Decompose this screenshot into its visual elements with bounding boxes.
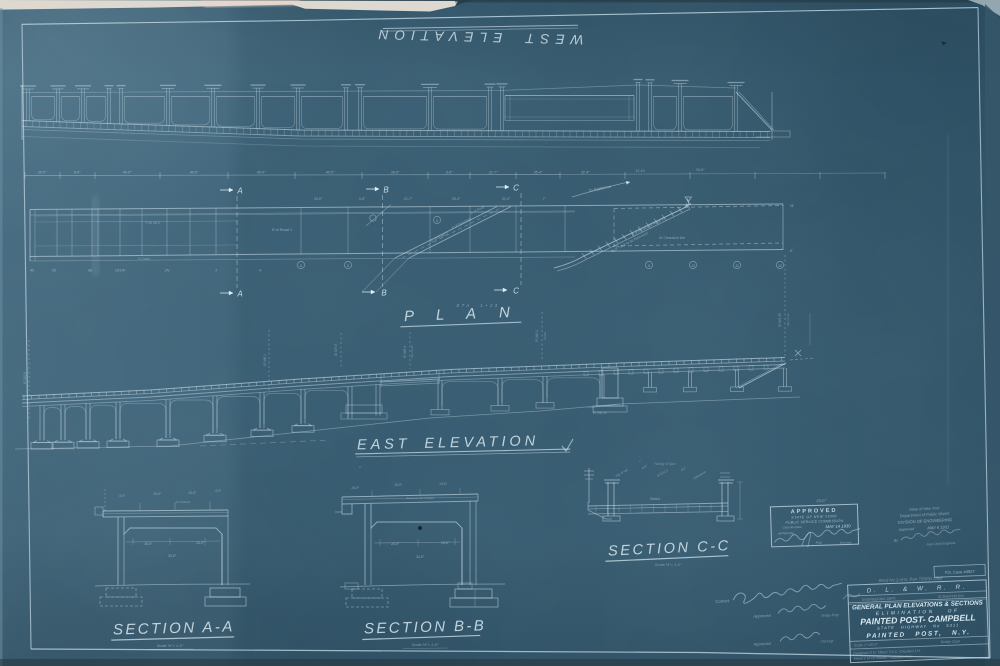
svg-text:A: A [236, 187, 242, 196]
svg-text:5-6″: 5-6″ [359, 197, 366, 201]
svg-text:40-0″: 40-0″ [326, 171, 335, 175]
svg-text:15-0″: 15-0″ [153, 492, 162, 496]
svg-text:El 938.4: El 938.4 [403, 346, 407, 358]
svg-text:1R1W: 1R1W [115, 269, 126, 273]
svg-text:35-4″: 35-4″ [534, 171, 543, 175]
svg-text:5: 5 [300, 264, 302, 268]
svg-text:4: 4 [259, 269, 261, 273]
svg-text:El 932.6: El 932.6 [23, 372, 27, 384]
svg-text:12-10: 12-10 [635, 169, 644, 173]
svg-text:El 936.2: El 936.2 [263, 354, 267, 366]
svg-text:16-6″: 16-6″ [391, 542, 400, 546]
svg-text:Case No./Date: Case No./Date [783, 525, 802, 530]
svg-text:El 941.95: El 941.95 [778, 313, 782, 327]
svg-text:x: x [358, 465, 361, 469]
svg-text:El 936.10: El 936.10 [593, 411, 607, 415]
svg-text:33-0″: 33-0″ [168, 554, 177, 558]
svg-text:9-6″: 9-6″ [74, 171, 81, 175]
svg-text:15-0″: 15-0″ [188, 491, 197, 495]
svg-text:32-4″: 32-4″ [581, 171, 590, 175]
svg-text:Pavement E of Road: Pavement E of Road [406, 496, 434, 500]
svg-text:6: 6 [347, 264, 349, 268]
svg-text:2N: 2N [164, 269, 170, 273]
svg-text:SECTION A-A: SECTION A-A [113, 618, 235, 638]
svg-text:Bridge Dept: Bridge Dept [941, 639, 961, 644]
svg-text:12: 12 [778, 264, 782, 268]
svg-text:4-0″: 4-0″ [119, 494, 126, 498]
svg-text:P: P [404, 308, 415, 325]
svg-text:35-4″: 35-4″ [452, 197, 461, 201]
svg-text:STA 1+23: STA 1+23 [456, 303, 499, 308]
svg-text:Ballast: Ballast [650, 497, 660, 501]
svg-text:E of Road: E of Road [176, 500, 190, 504]
svg-text:5 Crown: 5 Crown [138, 257, 150, 261]
svg-text:Approved: Approved [752, 613, 771, 619]
svg-text:B: B [383, 186, 389, 195]
svg-text:E of Road 1: E of Road 1 [272, 228, 292, 232]
svg-text:4947: 4947 [816, 498, 827, 503]
svg-text:Approved: Approved [752, 641, 771, 647]
svg-text:14-0″: 14-0″ [196, 541, 205, 545]
svg-text:40-0″: 40-0″ [123, 171, 132, 175]
svg-text:16-0″: 16-0″ [351, 486, 360, 490]
svg-text:B: B [381, 289, 387, 298]
svg-text:Chf Engr: Chf Engr [820, 639, 834, 644]
svg-text:5-6″: 5-6″ [446, 171, 453, 175]
svg-text:40-0″: 40-0″ [190, 171, 199, 175]
svg-text:Bridge Engr: Bridge Engr [821, 613, 839, 618]
svg-text:20-0″: 20-0″ [37, 171, 47, 175]
svg-text:39-6″: 39-6″ [391, 171, 400, 175]
svg-text:N: N [499, 304, 511, 321]
svg-text:Scale ½″= 1-0″: Scale ½″= 1-0″ [655, 562, 682, 567]
svg-text:10: 10 [691, 264, 695, 268]
svg-text:Secretary: Secretary [840, 540, 853, 544]
svg-text:34-0″: 34-0″ [416, 555, 425, 559]
svg-text:40-0″: 40-0″ [257, 171, 266, 175]
svg-text:39-6″: 39-6″ [314, 197, 323, 201]
svg-text:Top of rail: Top of rail [786, 313, 790, 326]
svg-text:T Gr 10.1: T Gr 10.1 [145, 221, 160, 225]
svg-text:9: 9 [648, 264, 650, 268]
svg-text:L: L [436, 307, 445, 324]
svg-text:Top of rail: Top of rail [410, 345, 414, 358]
svg-text:4-0″: 4-0″ [215, 489, 222, 493]
svg-text:A: A [236, 290, 242, 299]
svg-text:Correct: Correct [715, 598, 730, 604]
svg-text:14-6″: 14-6″ [439, 482, 448, 486]
svg-text:C: C [513, 287, 519, 296]
svg-text:15-0″: 15-0″ [394, 483, 403, 487]
svg-text:C: C [513, 184, 519, 193]
svg-text:El 940.1: El 940.1 [535, 330, 539, 342]
svg-text:Actg: Actg [814, 540, 821, 544]
svg-text:MAY 14 1930: MAY 14 1930 [825, 523, 851, 529]
svg-text:Grade: Grade [543, 332, 547, 341]
svg-text:SECTION B-B: SECTION B-B [364, 617, 487, 637]
svg-text:A: A [465, 305, 477, 322]
svg-text:21-7″: 21-7″ [488, 171, 498, 175]
svg-text:Scale ½″= 1-0″: Scale ½″= 1-0″ [157, 643, 184, 648]
svg-text:11: 11 [735, 264, 739, 268]
svg-text:By: By [894, 538, 899, 542]
svg-text:18-6″: 18-6″ [144, 542, 153, 546]
svg-text:El 937.8: El 937.8 [334, 344, 338, 356]
svg-text:32-4″: 32-4″ [502, 197, 511, 201]
svg-text:14-0″: 14-0″ [441, 541, 450, 545]
svg-text:W: W [790, 204, 794, 208]
svg-text:35-6″: 35-6″ [696, 168, 705, 172]
svg-text:41 Clearance line: 41 Clearance line [659, 236, 686, 240]
svg-text:Scale ½″= 1-0″: Scale ½″= 1-0″ [412, 642, 439, 647]
svg-text:Facing of Spur: Facing of Spur [654, 462, 676, 466]
svg-text:APPROVAL: APPROVAL [777, 531, 794, 536]
svg-text:21-7″: 21-7″ [403, 197, 413, 201]
svg-text:8: 8 [436, 219, 438, 223]
